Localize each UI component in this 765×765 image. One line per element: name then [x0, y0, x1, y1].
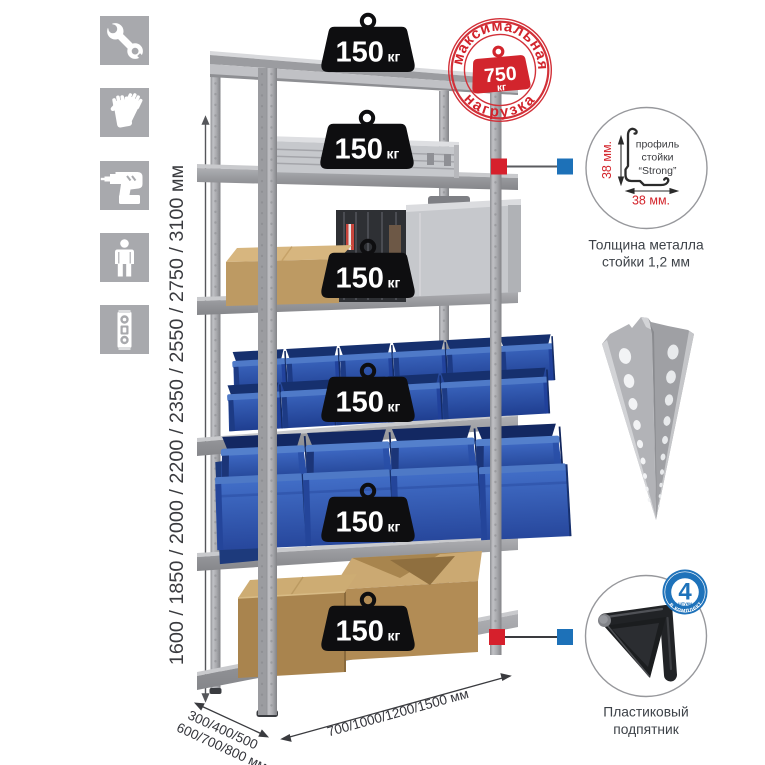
svg-text:штуки: штуки — [678, 601, 692, 606]
svg-text:стойки: стойки — [641, 152, 673, 164]
svg-text:подпятник: подпятник — [613, 722, 679, 737]
svg-text:38 мм.: 38 мм. — [632, 194, 670, 208]
svg-text:Пластиковый: Пластиковый — [603, 705, 688, 720]
svg-text:стойки 1,2 мм: стойки 1,2 мм — [602, 255, 690, 270]
svg-text:Толщина металла: Толщина металла — [588, 238, 704, 253]
svg-text:профиль: профиль — [636, 139, 680, 151]
svg-text:38 мм.: 38 мм. — [600, 141, 614, 179]
svg-text:“Strong”: “Strong” — [639, 165, 677, 177]
svg-text:кг: кг — [497, 82, 507, 94]
svg-text:1600 / 1850 / 2000 / 2200 / 23: 1600 / 1850 / 2000 / 2200 / 2350 / 2550 … — [166, 165, 188, 665]
